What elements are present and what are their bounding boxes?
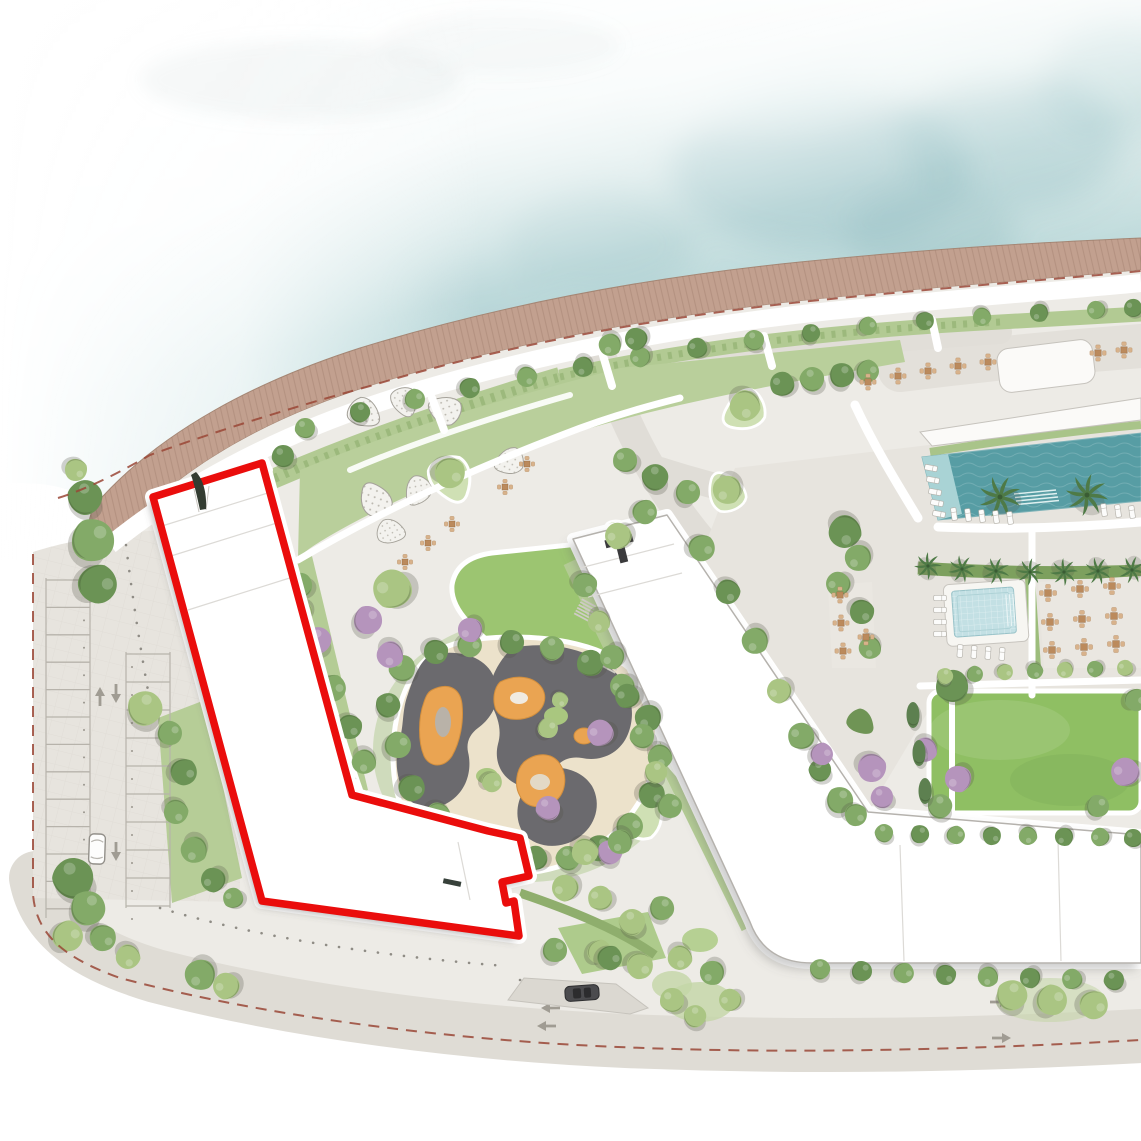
sun-lounger [971,646,977,659]
sun-lounger [999,648,1005,661]
sun-lounger [985,647,991,660]
sun-lounger [934,619,947,624]
sun-lounger [934,631,947,636]
kids-pool [943,579,1029,647]
sun-lounger [957,645,963,658]
play-structure [435,707,451,737]
car-dark [565,984,600,1001]
sun-lounger [934,595,947,600]
sun-lounger [934,607,947,612]
site-plan-stage [0,0,1141,1141]
site-plan [0,0,1141,1141]
car-white [88,834,105,865]
